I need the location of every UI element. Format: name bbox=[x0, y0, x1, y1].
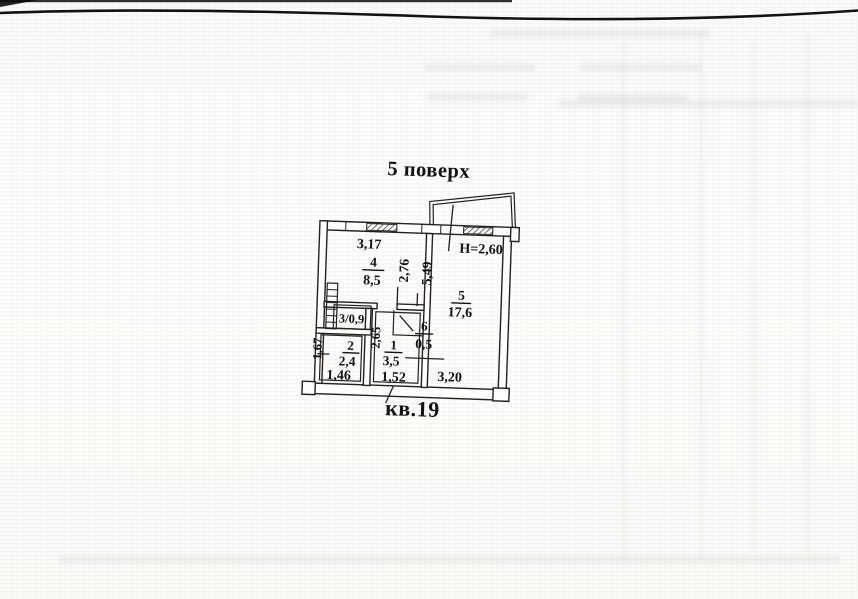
room-4-underline bbox=[362, 270, 384, 271]
room-2-area: 2,4 bbox=[338, 353, 356, 369]
dim-hall-depth: 2,65 bbox=[369, 327, 384, 349]
room-5-area: 17,6 bbox=[447, 305, 472, 321]
room-3-label: 3/0,9 bbox=[339, 311, 365, 326]
room-1-number: 1 bbox=[390, 337, 397, 352]
scanned-floor-plan-page: 5 поверх bbox=[0, 0, 858, 599]
dim-bath-depth: 1,67 bbox=[310, 338, 325, 360]
floor-plan-drawing: 5 поверх bbox=[0, 0, 858, 599]
interior-walls bbox=[314, 230, 432, 388]
room-6-area: 0,5 bbox=[415, 336, 433, 352]
room-4-area: 8,5 bbox=[363, 273, 381, 289]
room-5-number: 5 bbox=[458, 288, 466, 303]
room-6-underline bbox=[415, 334, 433, 335]
dim-living-width: 3,20 bbox=[437, 370, 462, 386]
ceiling-height-label: H=2,60 bbox=[459, 242, 503, 259]
room-4-number: 4 bbox=[370, 254, 378, 269]
room-2-number: 2 bbox=[347, 338, 354, 353]
window-kitchen bbox=[367, 224, 397, 232]
floor-title: 5 поверх bbox=[387, 158, 471, 183]
apartment-label: кв.19 bbox=[385, 395, 440, 422]
scan-edge-artifacts bbox=[0, 0, 858, 19]
dim-kitchen-depth: 2,76 bbox=[396, 258, 412, 282]
dim-top-width: 3,17 bbox=[357, 237, 382, 253]
balcony-outline bbox=[429, 190, 517, 227]
dim-hall-width: 1,52 bbox=[381, 370, 406, 386]
room-5-underline bbox=[451, 303, 471, 304]
dim-living-depth: 5,49 bbox=[419, 261, 435, 285]
room-1-area: 3,5 bbox=[382, 353, 400, 369]
window-living bbox=[464, 227, 493, 235]
floor-plan: 5 поверх bbox=[301, 155, 522, 424]
dim-bath-width: 1,46 bbox=[326, 368, 351, 384]
room-6-number: 6 bbox=[421, 318, 429, 333]
